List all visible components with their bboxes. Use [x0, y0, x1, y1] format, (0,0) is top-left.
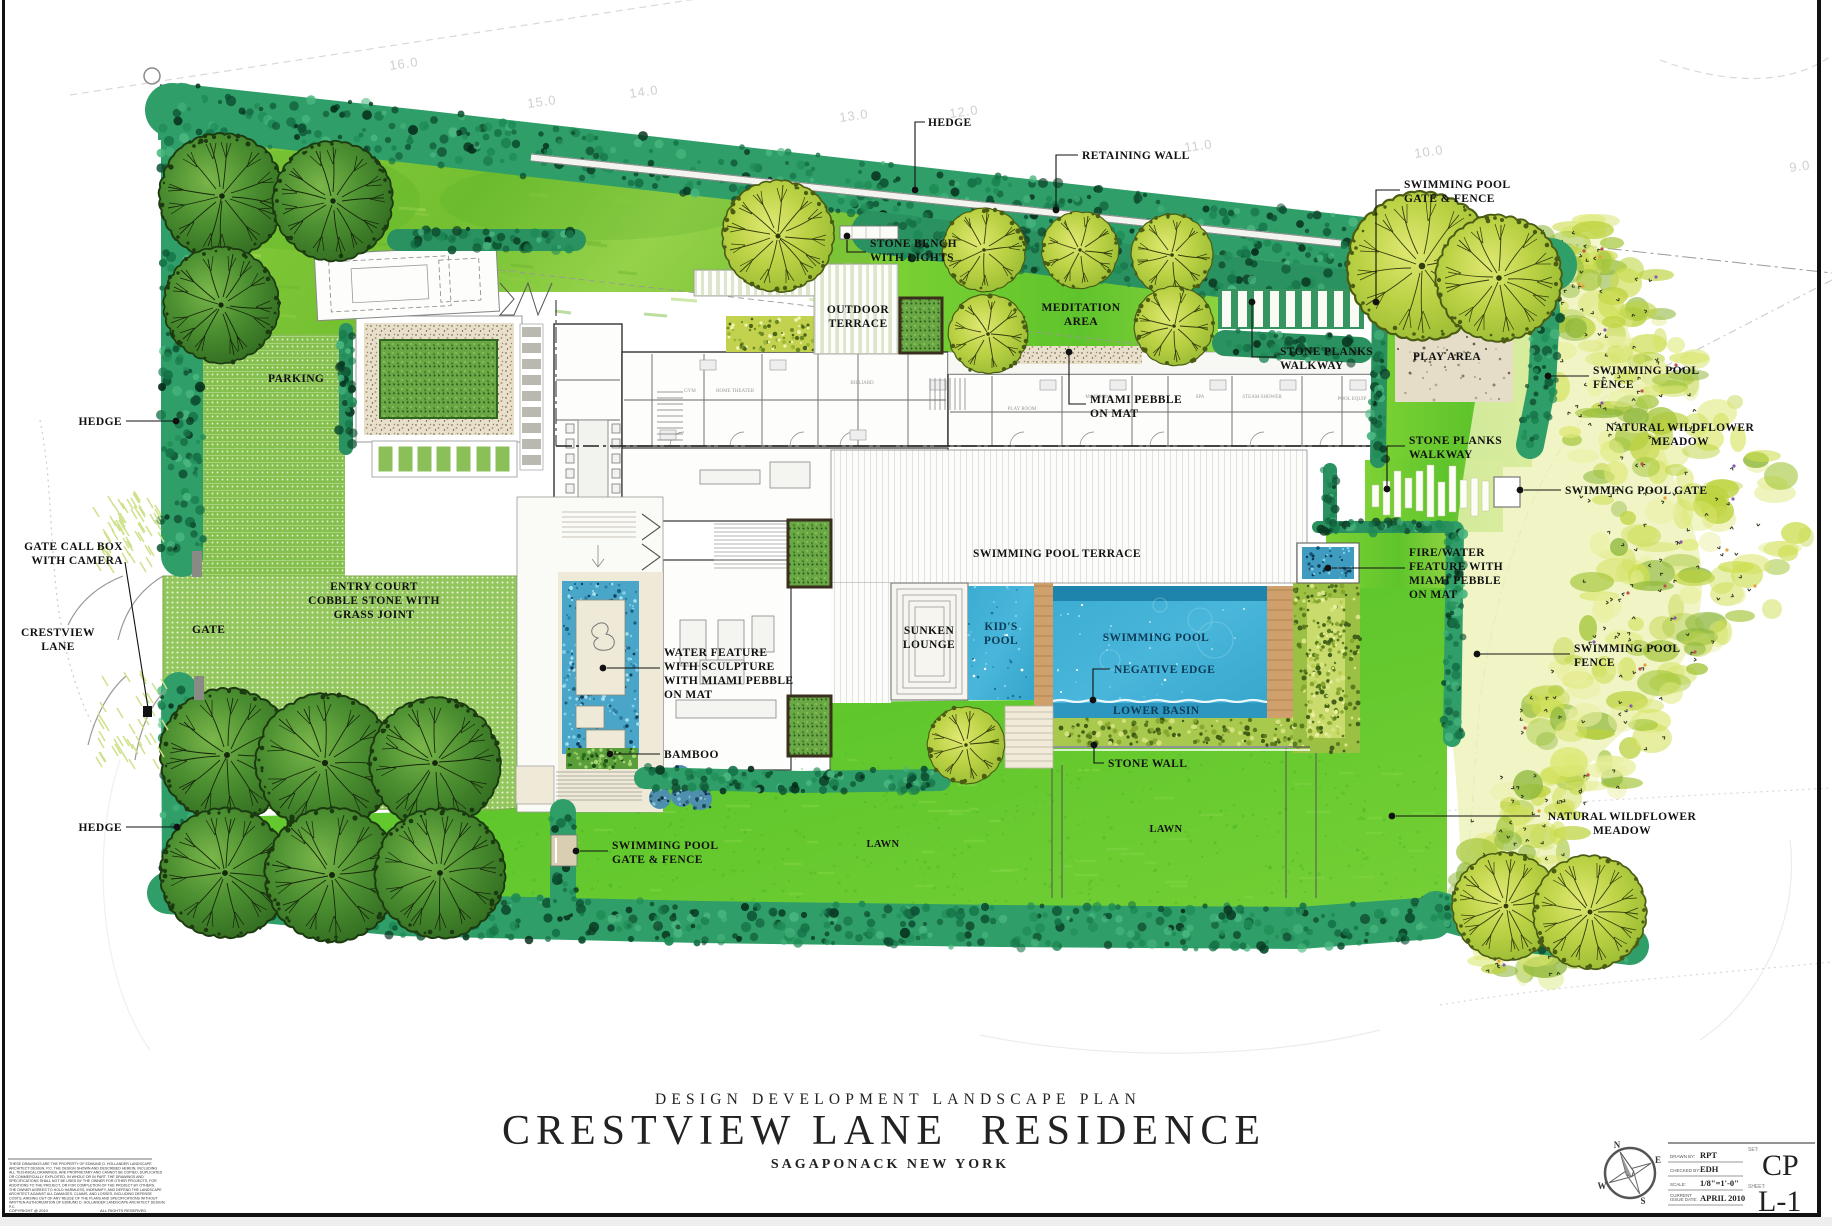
svg-text:PLAY ROOM: PLAY ROOM — [1008, 407, 1037, 412]
svg-text:HOME THEATER: HOME THEATER — [716, 389, 755, 394]
svg-text:BILLIARD: BILLIARD — [850, 381, 874, 386]
svg-text:9.0: 9.0 — [1788, 157, 1811, 175]
svg-text:POOL EQUIP: POOL EQUIP — [1338, 397, 1367, 402]
svg-text:STEAM SHOWER: STEAM SHOWER — [1242, 395, 1282, 400]
svg-text:GYM: GYM — [684, 389, 696, 394]
svg-text:SPA: SPA — [1196, 395, 1205, 400]
